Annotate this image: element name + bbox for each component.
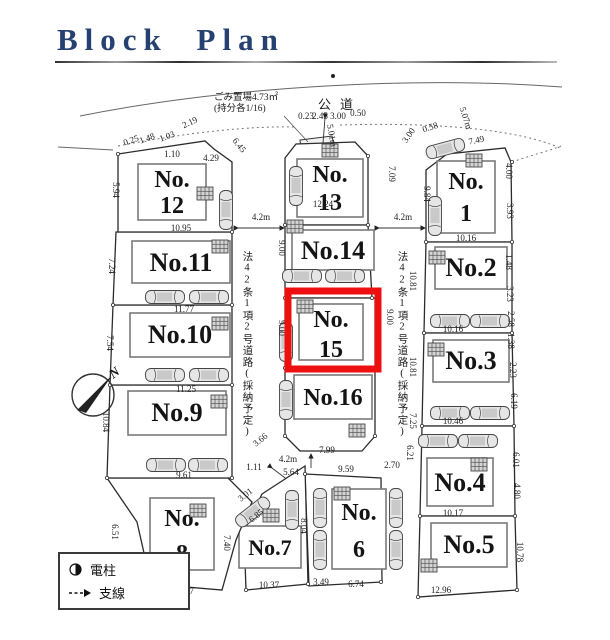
lot-15-number: 15 <box>319 337 343 363</box>
dim-label: 10.95 <box>171 223 192 233</box>
dim-label: 5.64 <box>283 467 299 477</box>
building-icon <box>263 509 279 522</box>
dim-label: 9.84 <box>422 186 432 202</box>
boundary-point <box>510 331 513 334</box>
car-icon <box>429 197 442 236</box>
legend-row-pole: 電柱 <box>68 558 180 581</box>
dim-label: 6.74 <box>348 579 364 589</box>
car-icon <box>283 270 322 283</box>
dim-label: 9.61 <box>176 470 192 480</box>
lot-6-number: No. <box>341 500 376 526</box>
dim-label: 7.40 <box>222 535 232 551</box>
lot-6-number: 6 <box>353 537 365 563</box>
car-icon <box>390 531 403 570</box>
legend-row-wire: 支線 <box>68 581 180 604</box>
car-icon <box>190 369 229 382</box>
lot-15-number: No. <box>313 307 348 333</box>
legend-pole-label: 電柱 <box>90 560 116 579</box>
dim-label: 1.11 <box>246 462 261 472</box>
legend-wire-label: 支線 <box>99 583 125 602</box>
car-icon <box>326 270 365 283</box>
title-underline <box>55 61 557 63</box>
dim-label: 1.38 <box>506 333 516 349</box>
dim-label: 2.58 <box>506 311 516 327</box>
car-icon <box>220 191 233 230</box>
lot-16-number: No.16 <box>303 385 362 411</box>
boundary-point <box>418 514 421 517</box>
boundary-point <box>510 240 513 243</box>
dim-label: 12.24 <box>313 199 334 209</box>
boundary-point <box>373 434 376 437</box>
building-icon <box>421 559 437 572</box>
boundary-point <box>515 588 518 591</box>
car-icon <box>189 459 228 472</box>
building-icon <box>349 424 365 437</box>
boundary-point <box>513 514 516 517</box>
boundary-point <box>366 223 369 226</box>
boundary-point <box>303 472 306 475</box>
dim-label: 11.77 <box>174 304 194 314</box>
car-icon <box>471 407 510 420</box>
dim-label: 1.10 <box>164 149 180 159</box>
dim-label: 3.93 <box>505 203 515 219</box>
dim-label: 6.01 <box>511 452 521 468</box>
dim-label: 7.24 <box>107 258 117 274</box>
corner-tie-line <box>512 146 561 162</box>
boundary-point <box>420 424 423 427</box>
lot-14[interactable]: No.14 <box>285 225 374 298</box>
dim-label: 2.19 <box>180 114 199 130</box>
car-icon <box>419 435 458 448</box>
building-icon <box>212 240 228 253</box>
dim-label: 2.70 <box>384 460 400 470</box>
building-icon <box>190 504 206 517</box>
lot-14-number: No.14 <box>301 236 365 265</box>
car-icon <box>280 381 293 420</box>
boundary-left-segment <box>58 147 113 150</box>
dim-label: 4.2m <box>394 212 412 222</box>
dim-label: 6.51 <box>110 524 120 540</box>
building-icon <box>212 317 228 330</box>
dim-label: 11.25 <box>176 384 196 394</box>
lot-11-number: No.11 <box>150 248 213 277</box>
dim-label: 4.2m <box>279 454 297 464</box>
building-icon <box>211 395 227 408</box>
dim-label: 1.48 <box>138 131 157 146</box>
dim-label: 5.07m <box>458 106 475 131</box>
page-title: Block Plan <box>57 22 285 58</box>
road-label-left: 法42条1項2号道路(採納予定) <box>241 251 252 438</box>
dim-label: 6.21 <box>405 445 415 461</box>
dim-label: 10.46 <box>443 416 464 426</box>
boundary-point <box>105 476 108 479</box>
dim-label: 4.00 <box>504 163 514 179</box>
lot-9-number: No.9 <box>151 398 202 427</box>
boundary-point <box>230 476 233 479</box>
boundary-point <box>424 240 427 243</box>
lot-7-number: No.7 <box>248 535 291 560</box>
boundary-point <box>422 331 425 334</box>
building-icon <box>429 251 445 264</box>
dim-label: 7.25 <box>408 413 418 429</box>
lot-1-number: 1 <box>460 201 472 227</box>
public-road-label: 公道 <box>318 94 362 113</box>
car-icon <box>146 369 185 382</box>
dim-label: 1.48 <box>504 254 514 270</box>
lot-1-number: No. <box>448 169 483 195</box>
dim-label: 10.16 <box>456 233 477 243</box>
car-icon <box>314 489 327 528</box>
building-icon <box>471 458 487 471</box>
guy-wire-legend-icon <box>68 588 92 598</box>
dim-label: 4.80 <box>512 483 522 499</box>
building-icon <box>428 343 444 356</box>
lot-7[interactable]: No.7 <box>239 466 308 590</box>
dim-label: 6.45 <box>231 136 249 155</box>
building-icon <box>287 220 303 233</box>
dim-label: 3.00 <box>400 126 418 145</box>
car-icon <box>471 315 510 328</box>
dim-label: 3.49 <box>313 577 329 587</box>
trash-area-label: ごみ置場4.73㎡ (持分各1/16) <box>214 93 278 115</box>
lot-16[interactable]: No.16 <box>285 368 375 451</box>
boundary-point <box>283 434 286 437</box>
lot-12-number: 12 <box>160 193 184 219</box>
boundary-point <box>244 588 247 591</box>
dim-label: 12.96 <box>431 585 452 595</box>
boundary-point <box>416 595 419 598</box>
dim-label: 10.84 <box>101 412 111 433</box>
dim-label: 10.81 <box>408 357 418 377</box>
lot-13-number: No. <box>312 162 347 188</box>
dim-label: 7.49 <box>468 133 486 146</box>
boundary-point <box>379 580 382 583</box>
dim-label: 4.2m <box>252 212 270 222</box>
dim-label: 7.54 <box>105 335 115 351</box>
dim-label: 5.94 <box>111 182 121 198</box>
dim-label: 8.04 <box>299 518 309 534</box>
boundary-point <box>306 582 309 585</box>
boundary-point <box>512 424 515 427</box>
lot-2-number: No.2 <box>445 253 496 282</box>
lot-5-number: No.5 <box>443 530 494 559</box>
boundary-point <box>116 152 119 155</box>
car-icon <box>146 291 185 304</box>
utility-pole-legend-icon <box>68 562 83 577</box>
utility-pole-icon <box>331 74 335 78</box>
boundary-point <box>230 303 233 306</box>
dim-label: 1.03 <box>158 129 177 144</box>
dim-label: 9.00 <box>277 240 287 256</box>
dim-label: 6.19 <box>509 393 519 409</box>
boundary-point <box>111 303 114 306</box>
boundary-point <box>370 296 373 299</box>
lot-10-number: No.10 <box>148 320 212 349</box>
dim-label: 10.78 <box>515 542 525 563</box>
boundary-point <box>230 230 233 233</box>
car-icon <box>190 291 229 304</box>
car-icon <box>459 435 498 448</box>
dim-label: 9.59 <box>338 464 354 474</box>
legend-box: 電柱 支線 <box>58 552 190 610</box>
dim-label: 0.25 <box>122 133 141 148</box>
boundary-point <box>283 223 286 226</box>
car-icon <box>314 531 327 570</box>
dim-label: 10.17 <box>443 508 464 518</box>
dim-label: 0.58 <box>421 120 440 135</box>
road-label-right: 法42条1項2号道路(採納予定) <box>396 251 407 438</box>
dim-label: 9.00 <box>385 309 395 325</box>
building-icon <box>297 300 313 313</box>
boundary-point <box>510 160 513 163</box>
building-icon <box>197 187 213 200</box>
dim-label: 10.16 <box>443 324 464 334</box>
lot-12-number: No. <box>154 167 189 193</box>
dim-label: 3.23 <box>505 286 515 302</box>
trash-area-line1: ごみ置場4.73㎡ <box>214 93 278 104</box>
car-icon <box>390 489 403 528</box>
trash-area-line2: (持分各1/16) <box>214 104 278 115</box>
building-icon <box>334 487 350 500</box>
building-icon <box>466 154 482 167</box>
boundary-point <box>230 383 233 386</box>
dim-label: 10.81 <box>408 271 418 291</box>
dim-label: 4.29 <box>203 153 219 163</box>
dim-label: 3.66 <box>251 431 270 449</box>
boundary-point <box>366 154 369 157</box>
car-icon <box>286 491 299 530</box>
lot-3-number: No.3 <box>445 346 496 375</box>
car-icon <box>290 167 303 206</box>
compass-needle-icon <box>78 377 111 413</box>
lot-4-number: No.4 <box>434 468 485 497</box>
dim-label: 2.23 <box>508 362 518 378</box>
dim-label: 10.37 <box>259 580 280 590</box>
dim-label: 7.99 <box>319 445 335 455</box>
dim-label: 7.09 <box>387 166 397 182</box>
